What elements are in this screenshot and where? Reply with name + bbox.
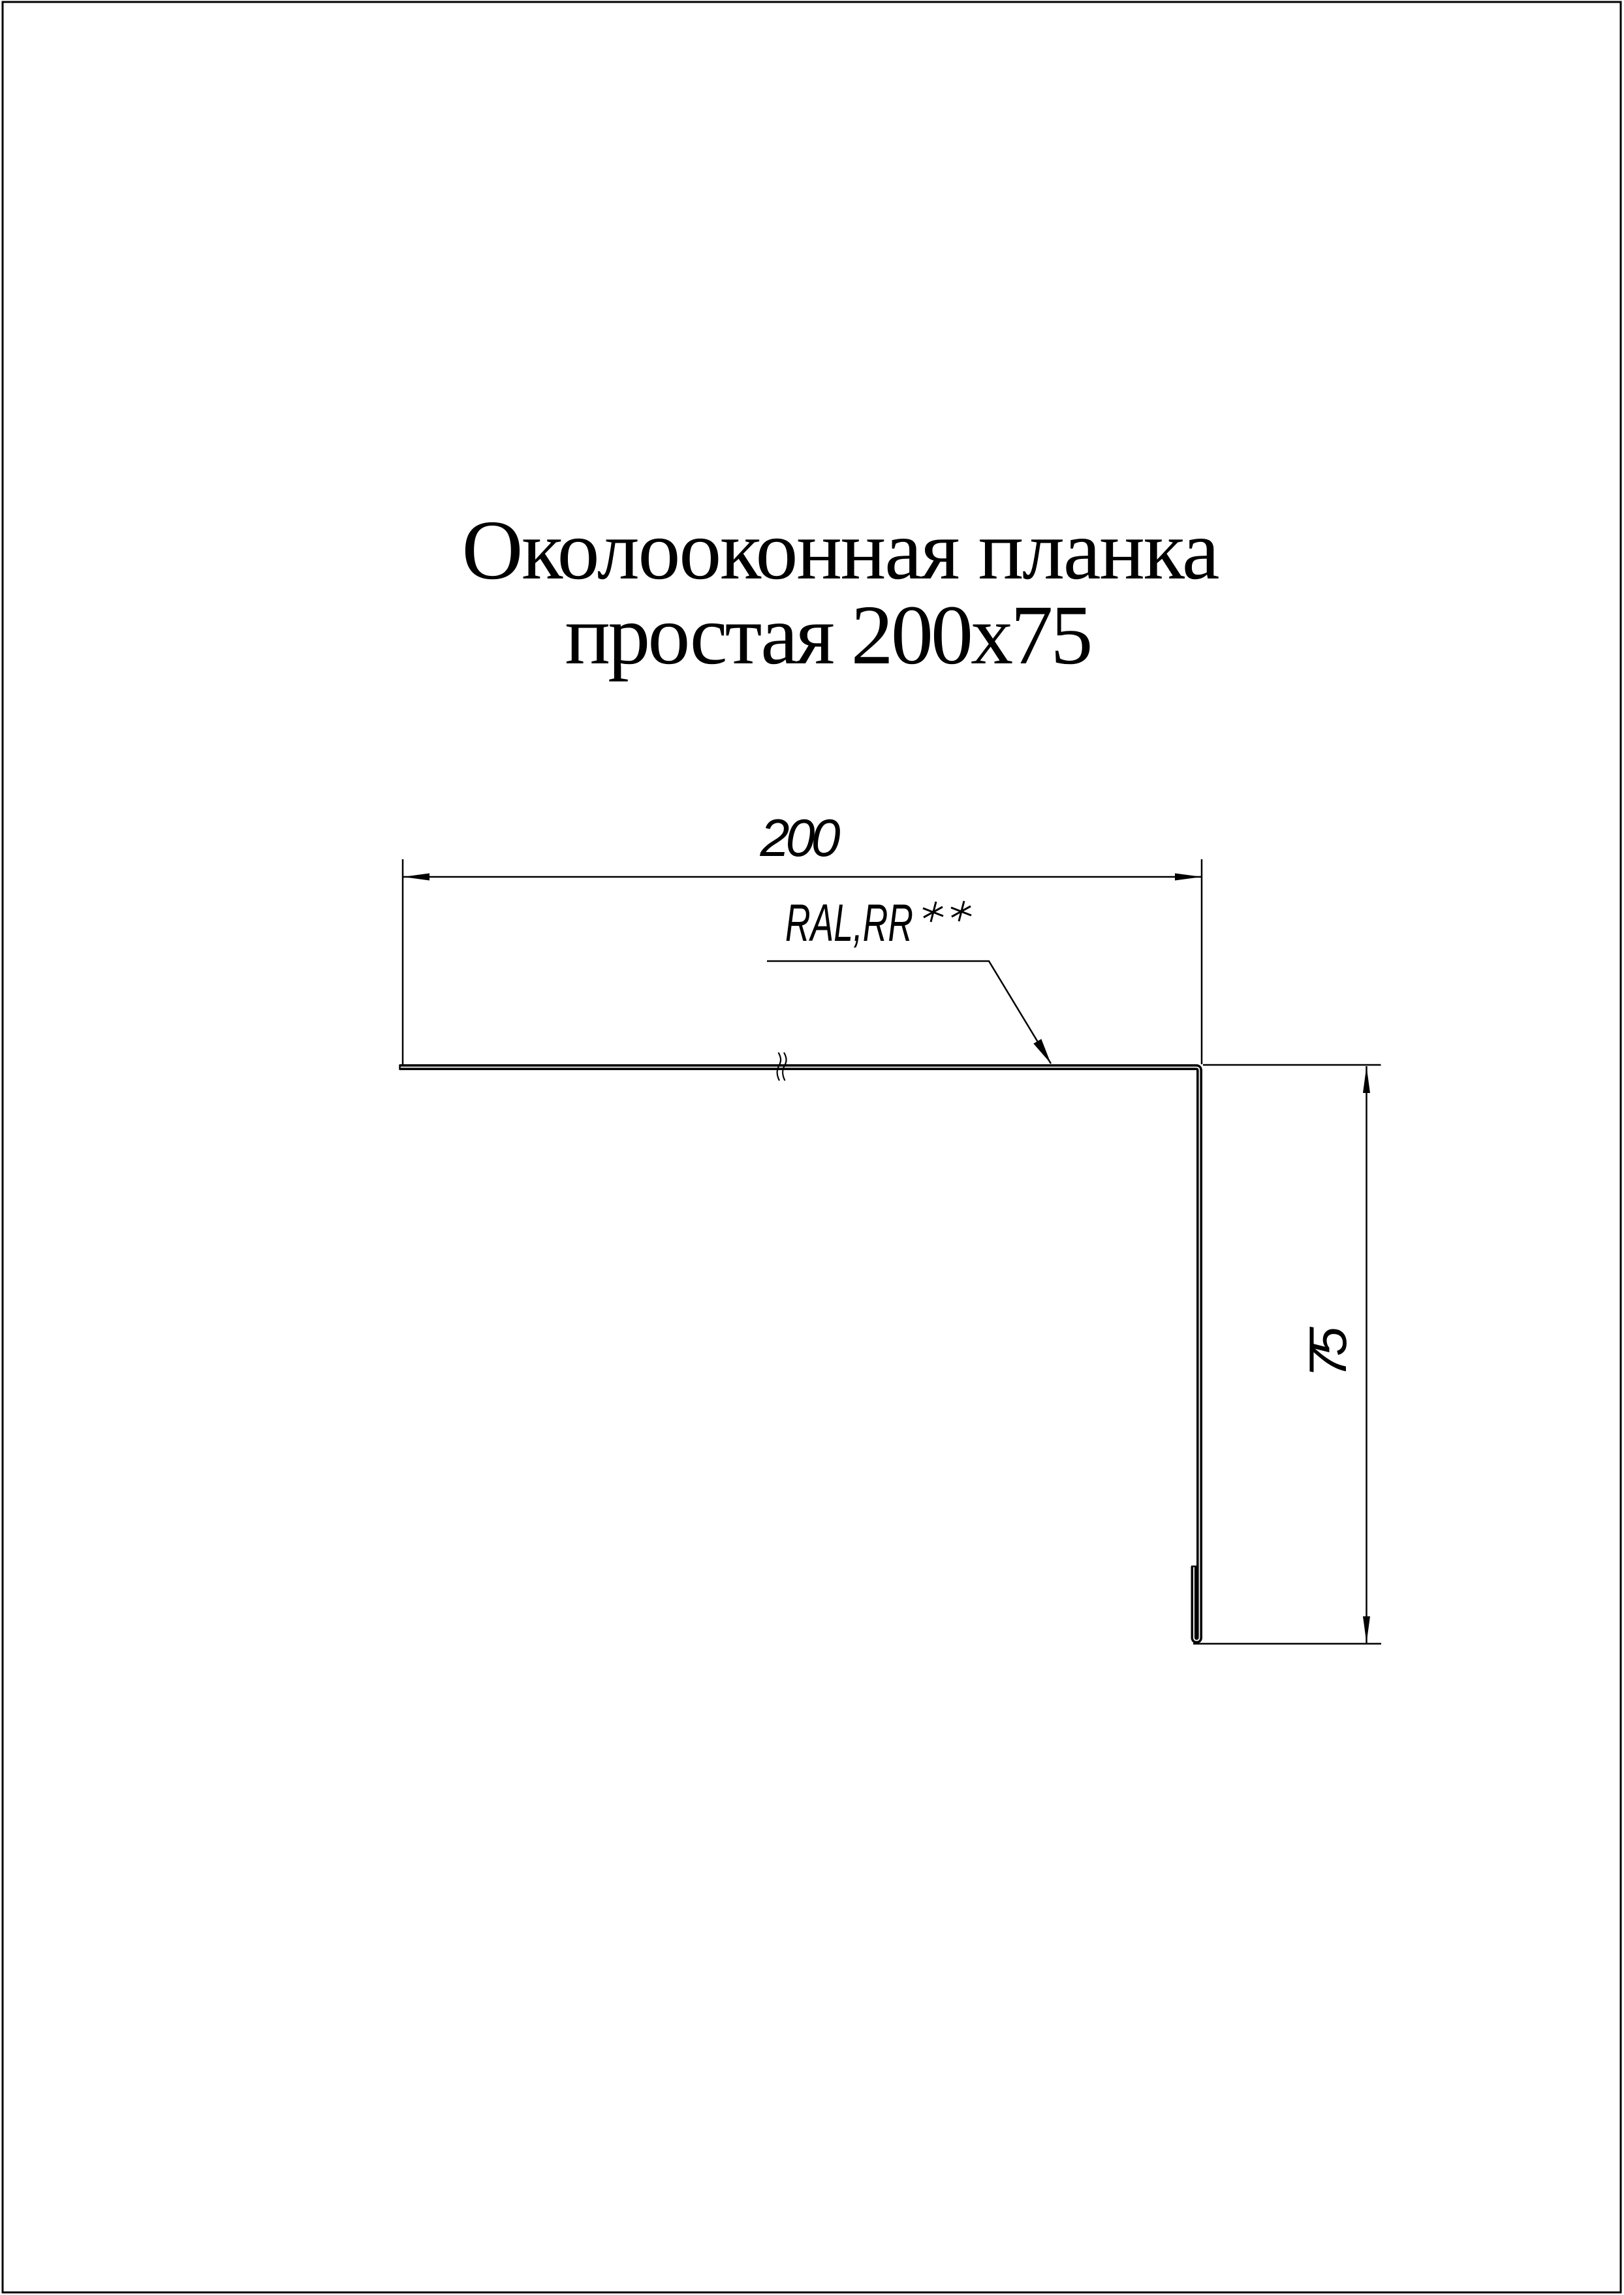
svg-text:Околооконная планка: Околооконная планка	[462, 503, 1220, 597]
svg-text:75: 75	[1299, 1326, 1358, 1378]
svg-text:простая 200х75: простая 200х75	[565, 588, 1093, 682]
svg-text:200: 200	[760, 809, 841, 868]
svg-text:RAL,RR: RAL,RR	[785, 894, 913, 953]
